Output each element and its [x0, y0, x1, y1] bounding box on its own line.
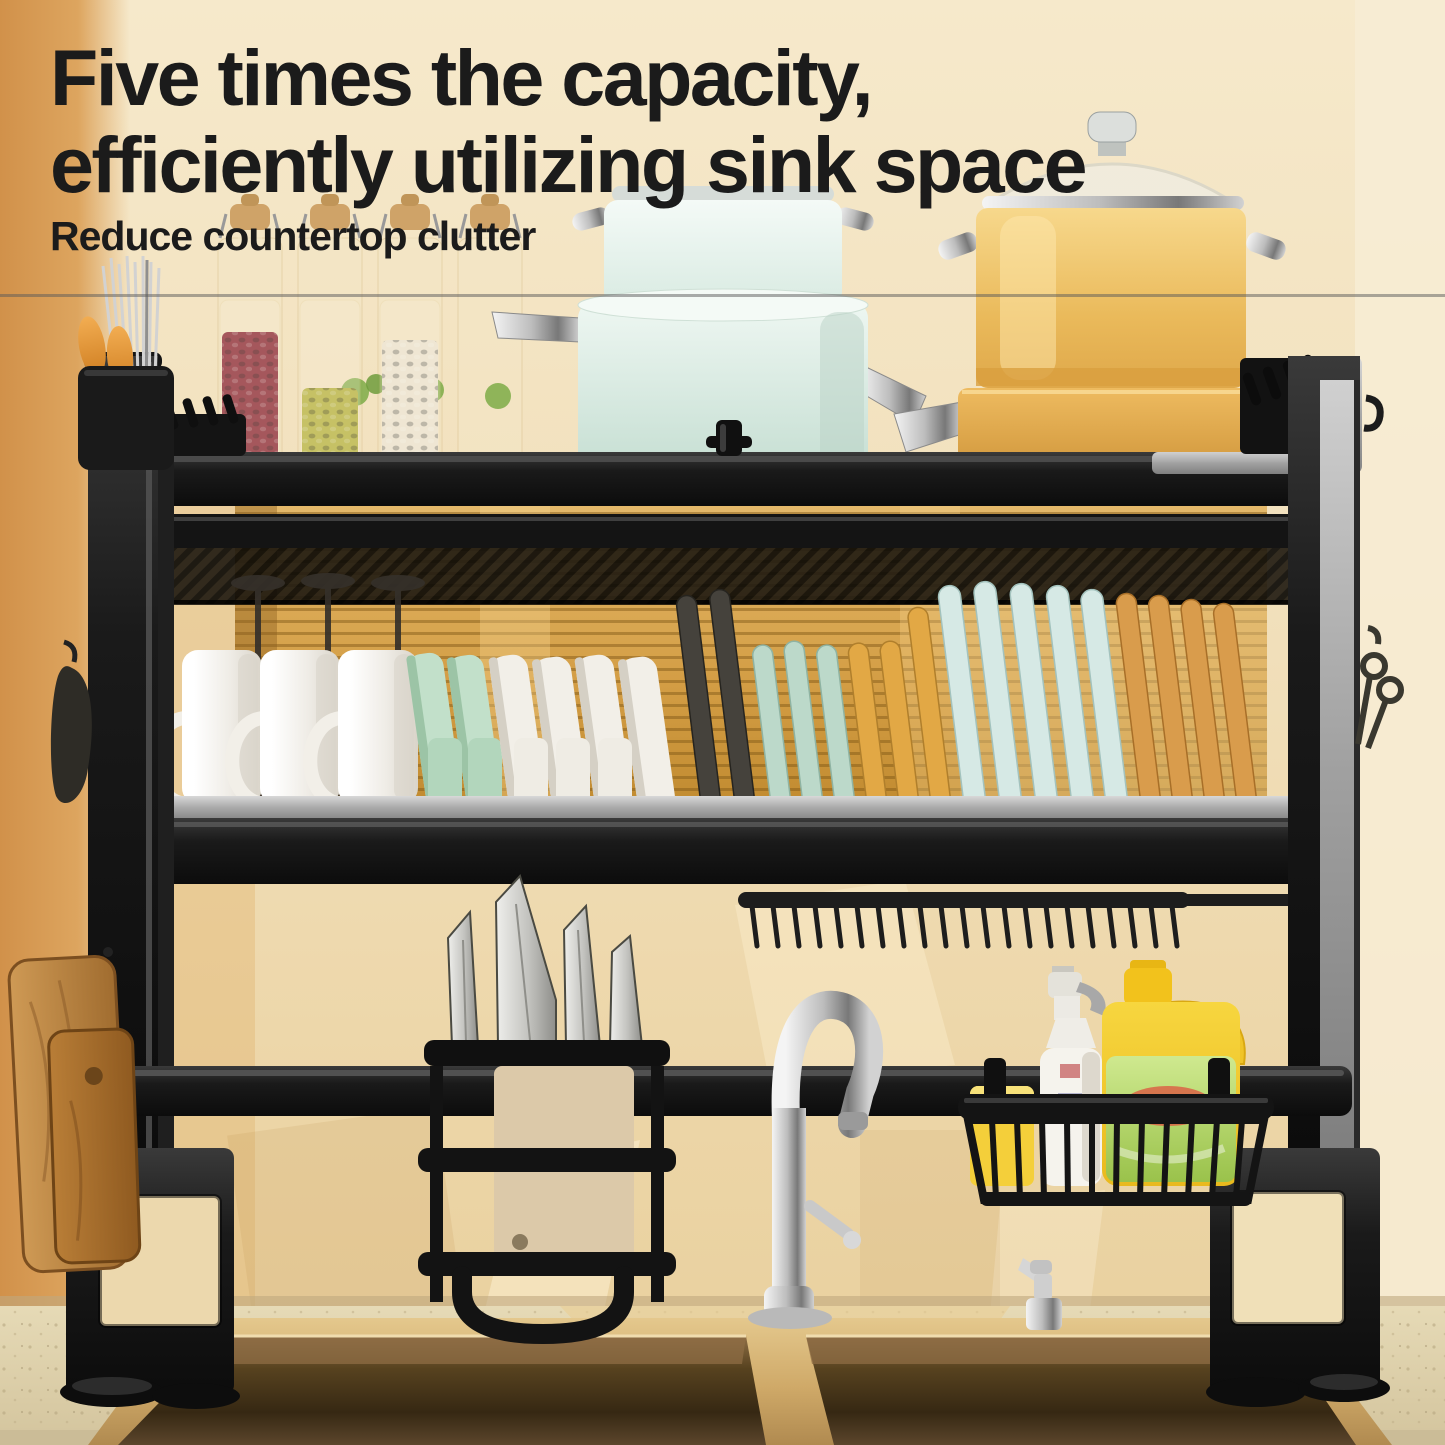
- right-leg: [1206, 1148, 1390, 1407]
- headline-line1: Five times the capacity,: [50, 34, 871, 121]
- shelf-front-rail: [136, 818, 1344, 884]
- herb-sprig: [485, 383, 511, 409]
- double-bowl-sink: [88, 1316, 1392, 1445]
- faucet-base: [748, 1307, 832, 1329]
- bean-jar-green: [300, 300, 360, 476]
- board-hook: [103, 947, 113, 957]
- middle-shelf: [136, 796, 1344, 884]
- basket-hook: [984, 1058, 1006, 1100]
- mugs-upside-down: [154, 650, 418, 804]
- faucet-column: [772, 1108, 806, 1290]
- holder-top-rim: [424, 1040, 670, 1066]
- template-divider-line: [0, 294, 1445, 297]
- suction-foot: [1206, 1377, 1306, 1407]
- cutting-board-small: [48, 1029, 140, 1264]
- jug-cap: [1124, 968, 1172, 1006]
- bean-jar-white: [380, 300, 440, 476]
- basket-hook: [1208, 1058, 1230, 1100]
- headline-line2: efficiently utilizing sink space: [50, 121, 1085, 208]
- faucet-aerator: [838, 1112, 868, 1130]
- shelf-silver-lip: [136, 796, 1344, 820]
- leg-cutout: [1232, 1192, 1344, 1324]
- suction-foot: [152, 1383, 240, 1409]
- holder-cup: [78, 366, 174, 470]
- right-post: [1288, 356, 1360, 1156]
- lid-knob: [1088, 112, 1136, 142]
- subtitle: Reduce countertop clutter: [50, 212, 535, 260]
- product-marketing-image: Five times the capacity, efficiently uti…: [0, 0, 1445, 1445]
